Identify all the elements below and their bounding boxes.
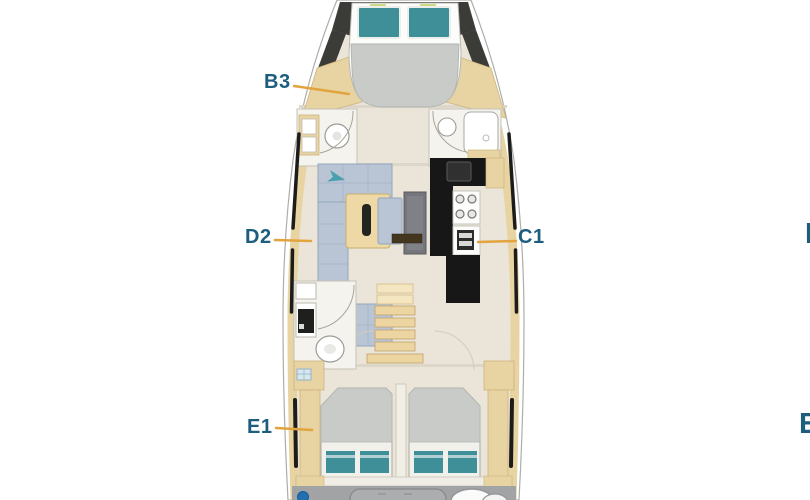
galley-sink — [447, 162, 471, 181]
stair-step — [375, 330, 415, 339]
label-cabin-right-bottom-partial: E — [799, 410, 810, 439]
vanity-sink-upper — [302, 119, 316, 134]
cabinet-handle — [299, 324, 304, 329]
stair-step — [377, 295, 413, 304]
pillow-stripe — [360, 455, 389, 458]
stair-step — [375, 318, 415, 327]
pillow-stripe — [414, 455, 443, 458]
transom-wall — [296, 477, 512, 486]
aft-pillow — [359, 450, 390, 474]
mid-head-port — [294, 281, 356, 369]
cockpit — [292, 486, 516, 500]
aft-rail-port — [300, 390, 320, 478]
toilet-bowl — [333, 132, 342, 141]
burner — [468, 210, 476, 218]
vberth-duvet — [351, 44, 459, 107]
stair-step-bottom — [367, 354, 423, 363]
aft-pillow — [447, 450, 478, 474]
pillow-stripe — [326, 455, 355, 458]
aft-pillow — [325, 450, 356, 474]
mooring-dot — [298, 492, 309, 500]
aft-duvet-starboard — [409, 388, 480, 442]
transom-locker-starboard — [484, 476, 512, 487]
vanity-sink-lower — [302, 137, 316, 152]
yacht-floorplan-canvas: B3 D2 C1 E1 D E — [0, 0, 810, 500]
shower-pan — [464, 112, 498, 154]
aft-pillow — [413, 450, 444, 474]
vberth-pillow-port — [358, 7, 400, 38]
galley-counter-aft-block — [446, 255, 480, 303]
transom-locker-port — [296, 476, 324, 487]
label-cabin-e1: E1 — [247, 417, 272, 437]
oven-vent — [459, 241, 472, 246]
leader-c1 — [478, 241, 516, 242]
label-cabin-b3: B3 — [264, 72, 291, 92]
hull-window-port-mid — [292, 250, 293, 312]
burner — [456, 210, 464, 218]
sink — [438, 118, 456, 136]
sink — [296, 283, 316, 299]
label-cabin-d2: D2 — [245, 227, 272, 247]
hull-window-starboard-aft — [511, 400, 512, 466]
toilet-bowl — [324, 344, 336, 354]
cabin-divider-wall — [396, 384, 406, 478]
vberth-pillow-starboard — [408, 7, 450, 38]
burner — [456, 195, 464, 203]
galley-counter-column — [430, 186, 453, 256]
storage-bar — [392, 234, 422, 243]
label-cabin-c1: C1 — [518, 227, 545, 247]
galley-trim — [486, 158, 504, 188]
forward-head-port — [297, 109, 357, 166]
table-leaf-slot — [362, 204, 371, 236]
label-cabin-right-top-partial: D — [805, 220, 810, 249]
hull-window-starboard-mid — [516, 250, 517, 312]
burner — [468, 195, 476, 203]
pillow-stripe — [448, 455, 477, 458]
leader-d2 — [275, 240, 311, 241]
cockpit-bench — [350, 489, 446, 500]
aft-duvet-port — [321, 388, 392, 442]
forward-head-starboard — [429, 109, 501, 166]
cabinet-door — [298, 309, 314, 333]
stair-step — [377, 284, 413, 293]
oven-vent — [459, 233, 472, 238]
aft-rail-starboard — [488, 390, 508, 478]
aft-cabinet-starboard — [484, 361, 514, 390]
yacht-plan-svg — [0, 0, 810, 500]
hull-window-port-aft — [295, 400, 296, 466]
stair-step — [375, 342, 415, 351]
stair-step — [375, 306, 415, 315]
